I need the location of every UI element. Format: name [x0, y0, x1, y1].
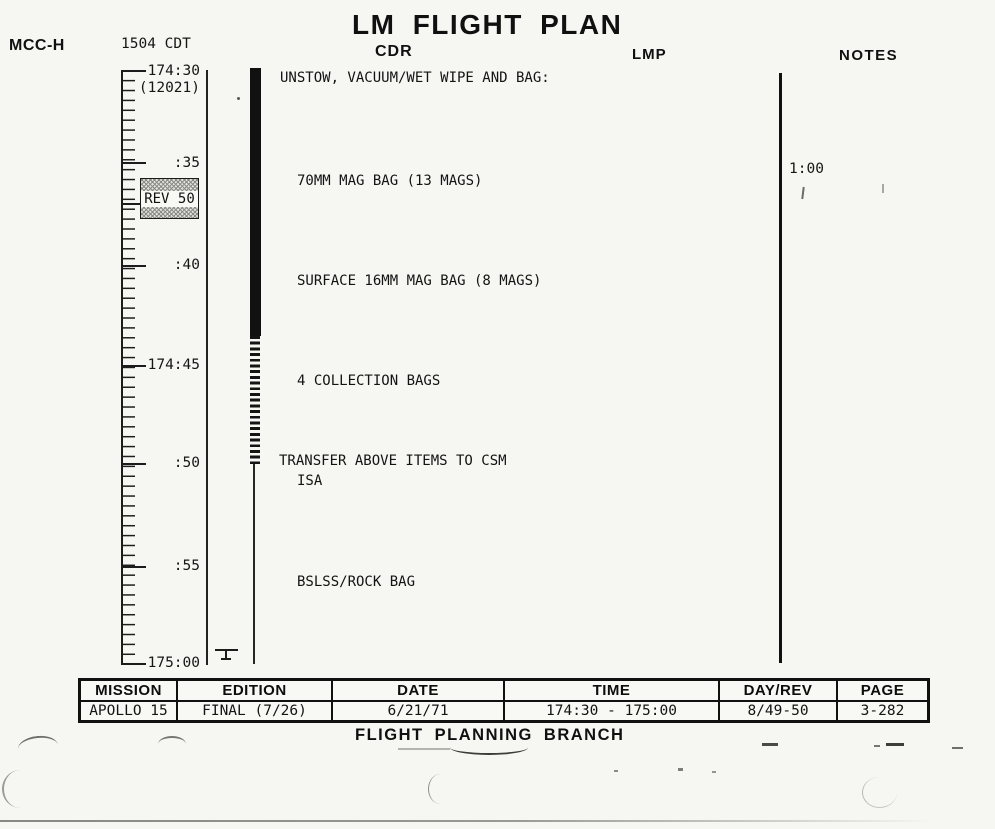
activity-bar-thin: [253, 464, 255, 664]
time-label-17500: 175:00: [120, 655, 200, 671]
timeline-end-symbol: [213, 645, 241, 663]
cdr-activity-item: ISA: [297, 465, 541, 498]
notes-duration-label: 1:00: [789, 161, 824, 177]
cdr-activity-item: SURFACE 16MM MAG BAG (8 MAGS): [297, 265, 541, 298]
scan-artifact-speck: [712, 771, 716, 773]
time-label-35: :35: [120, 155, 200, 171]
scan-artifact-tick: [882, 184, 884, 193]
value-page: 3-282: [838, 702, 927, 721]
notes-column-header: NOTES: [839, 47, 898, 64]
cdr-activity-list: 70MM MAG BAG (13 MAGS) SURFACE 16MM MAG …: [297, 98, 541, 666]
scan-artifact-arc: [428, 774, 453, 804]
scan-artifact-dash: [874, 745, 880, 747]
value-time: 174:30 - 175:00: [505, 702, 720, 721]
scan-artifact-speck: [614, 770, 618, 772]
cdr-activity-heading: UNSTOW, VACUUM/WET WIPE AND BAG:: [280, 70, 550, 86]
cdr-column-rule: [206, 70, 208, 665]
rev-50-label: REV 50: [141, 191, 198, 207]
value-day-rev: 8/49-50: [720, 702, 838, 721]
rev-50-marker: REV 50: [140, 178, 199, 219]
footer-table-value-row: APOLLO 15 FINAL (7/26) 6/21/71 174:30 - …: [81, 702, 927, 721]
cdt-clock-label: 1504 CDT: [121, 36, 191, 52]
value-edition: FINAL (7/26): [178, 702, 333, 721]
time-sublabel-12021: (12021): [120, 80, 200, 96]
scan-artifact-arc: [158, 736, 186, 752]
header-day-rev: DAY/REV: [720, 681, 838, 700]
scan-artifact-arc: [862, 777, 897, 808]
time-label-17430: 174:30: [120, 63, 200, 79]
header-time: TIME: [505, 681, 720, 700]
header-date: DATE: [333, 681, 505, 700]
scan-artifact-tick: [801, 187, 804, 199]
cdr-column-header: CDR: [375, 43, 413, 61]
page-title: LM FLIGHT PLAN: [352, 9, 622, 41]
footer-info-table: MISSION EDITION DATE TIME DAY/REV PAGE A…: [78, 678, 930, 723]
activity-bar-hatched: [250, 336, 260, 464]
footer-table-header-row: MISSION EDITION DATE TIME DAY/REV PAGE: [81, 681, 927, 702]
flight-planning-branch-label: FLIGHT PLANNING BRANCH: [355, 726, 624, 745]
header-mission: MISSION: [81, 681, 178, 700]
cdr-activity-item: BSLSS/ROCK BAG: [297, 566, 541, 599]
time-label-55: :55: [120, 558, 200, 574]
value-date: 6/21/71: [333, 702, 505, 721]
header-edition: EDITION: [178, 681, 333, 700]
scan-artifact-dash: [762, 743, 778, 746]
cdr-activity-item: 70MM MAG BAG (13 MAGS): [297, 165, 541, 198]
scan-artifact-speck: [678, 768, 683, 771]
lmp-column-header: LMP: [632, 46, 667, 63]
scan-artifact-arc: [17, 734, 59, 760]
cdr-transfer-note: TRANSFER ABOVE ITEMS TO CSM: [279, 453, 507, 469]
value-mission: APOLLO 15: [81, 702, 178, 721]
header-page: PAGE: [838, 681, 927, 700]
scan-artifact-dash: [886, 743, 904, 746]
scan-artifact-dot: [237, 97, 240, 100]
mcc-h-label: MCC-H: [9, 37, 65, 55]
activity-bar-solid: [250, 68, 261, 336]
scan-artifact-page-edge: [0, 820, 935, 822]
lmp-notes-column-rule: [779, 73, 782, 663]
cdr-activity-item: 4 COLLECTION BAGS: [297, 365, 541, 398]
scan-artifact-line: [398, 748, 450, 750]
time-label-40: :40: [120, 257, 200, 273]
time-label-17445: 174:45: [120, 357, 200, 373]
time-label-50: :50: [120, 455, 200, 471]
scan-artifact-arc: [2, 770, 38, 808]
scan-artifact-dash: [952, 747, 963, 749]
flight-plan-page: MCC-H 1504 CDT LM FLIGHT PLAN CDR LMP NO…: [0, 0, 995, 829]
